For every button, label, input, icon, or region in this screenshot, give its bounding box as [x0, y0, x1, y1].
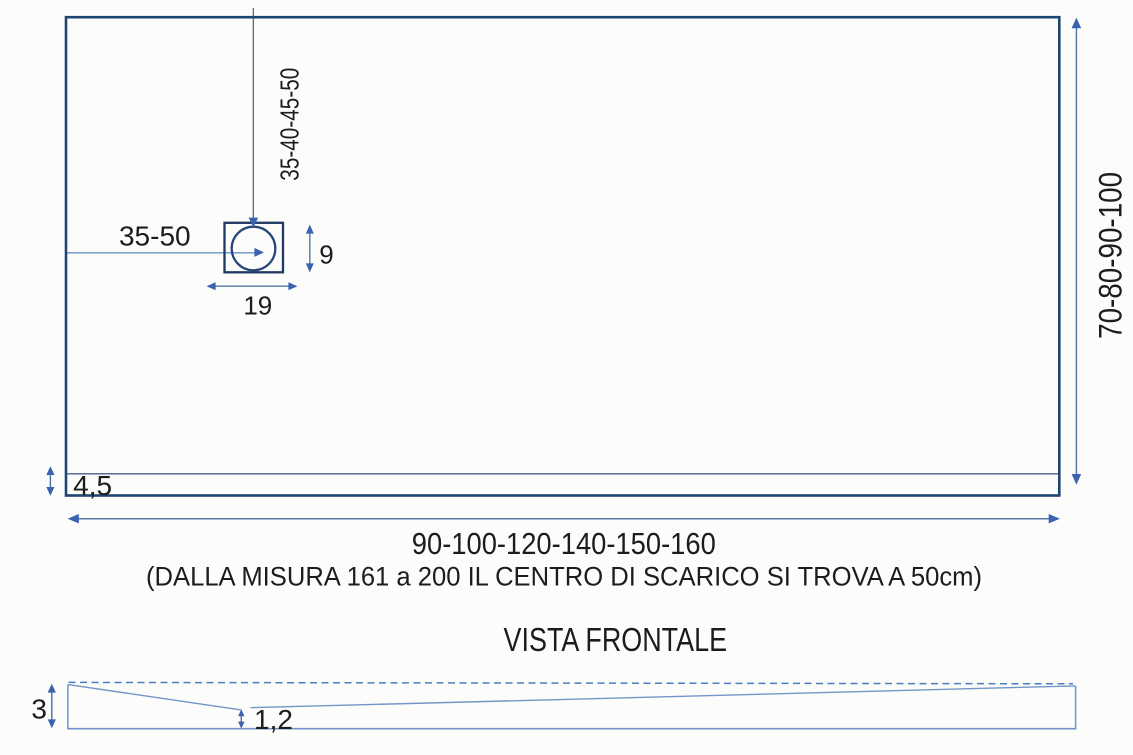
svg-text:19: 19: [243, 291, 272, 321]
svg-text:35-50: 35-50: [119, 220, 191, 251]
svg-text:70-80-90-100: 70-80-90-100: [1093, 172, 1129, 339]
svg-text:(DALLA MISURA 161 a 200 IL CEN: (DALLA MISURA 161 a 200 IL CENTRO DI SCA…: [146, 562, 982, 592]
svg-text:3: 3: [31, 694, 47, 725]
svg-text:35-40-45-50: 35-40-45-50: [274, 68, 304, 181]
svg-text:1,2: 1,2: [254, 704, 293, 735]
svg-text:4,5: 4,5: [73, 470, 112, 501]
svg-text:VISTA FRONTALE: VISTA FRONTALE: [504, 621, 728, 658]
svg-text:9: 9: [319, 240, 333, 270]
svg-text:90-100-120-140-150-160: 90-100-120-140-150-160: [412, 526, 716, 561]
